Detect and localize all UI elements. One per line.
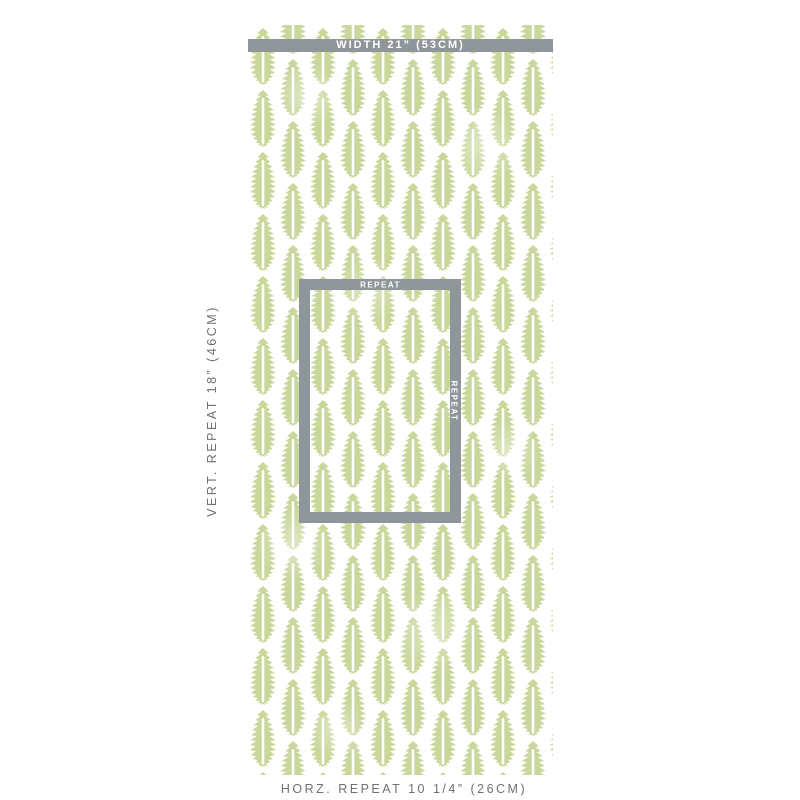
repeat-side-label: REPEAT [449,381,458,422]
horizontal-repeat-label: HORZ. REPEAT 10 1/4” (26CM) [281,782,527,796]
repeat-top-label: REPEAT [360,280,401,289]
product-image-canvas: WIDTH 21” (53CM) REPEAT REPEAT VERT. REP… [0,0,800,800]
repeat-outline-box: REPEAT REPEAT [299,279,461,523]
width-measure-label: WIDTH 21” (53CM) [336,39,465,52]
vertical-repeat-label: VERT. REPEAT 18” (46CM) [205,305,219,517]
width-measure-bar: WIDTH 21” (53CM) [248,39,553,52]
